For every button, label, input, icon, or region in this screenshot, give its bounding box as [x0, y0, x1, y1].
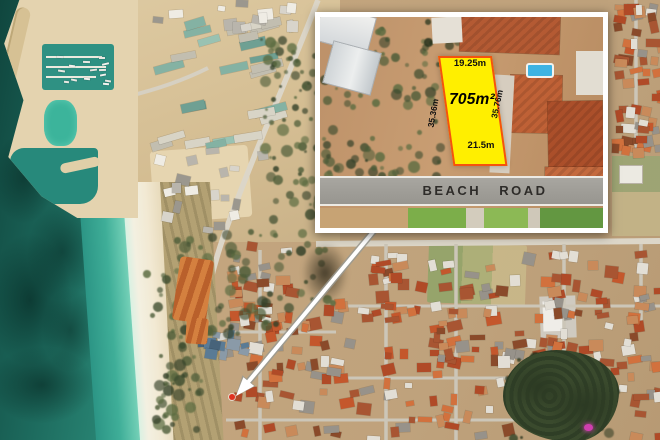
vegetation — [398, 146, 404, 152]
vegetation — [405, 63, 409, 67]
road-edge-line — [320, 204, 603, 206]
vegetation — [344, 90, 352, 98]
swimming-pool — [526, 63, 554, 78]
lawn-verge — [408, 208, 466, 228]
vegetation — [346, 140, 353, 147]
warehouse-roof — [323, 42, 380, 95]
house-roof — [431, 17, 462, 44]
vegetation — [371, 98, 380, 107]
vegetation — [379, 37, 391, 49]
vegetation — [332, 164, 340, 172]
road-name-label: BEACH ROAD — [385, 183, 585, 198]
dimension-bottom: 21.5m — [451, 140, 511, 151]
vegetation — [335, 87, 339, 91]
vegetation — [374, 152, 385, 163]
vegetation — [380, 165, 385, 170]
inset-map: 19.25m 705m² 35.36m 35.76m 21.5m BEACH R… — [315, 12, 608, 233]
vegetation — [328, 125, 339, 136]
road-edge-line — [320, 176, 603, 178]
vegetation — [377, 26, 386, 35]
vegetation — [349, 104, 356, 111]
vegetation — [390, 52, 400, 62]
aerial-photo: 19.25m 705m² 35.36m 35.76m 21.5m BEACH R… — [0, 0, 660, 440]
vegetation — [436, 143, 446, 153]
vegetation — [412, 86, 416, 90]
vegetation — [411, 91, 421, 101]
vegetation — [422, 73, 428, 79]
inset-aerial: 19.25m 705m² 35.36m 35.76m 21.5m BEACH R… — [320, 17, 603, 228]
vegetation — [357, 93, 363, 99]
vegetation — [421, 61, 428, 68]
house-roof — [547, 101, 603, 170]
vegetation — [365, 159, 369, 163]
house-roof — [576, 51, 603, 95]
vegetation — [322, 95, 332, 105]
vegetation — [437, 159, 441, 163]
vegetation — [406, 143, 413, 150]
vegetation — [408, 161, 420, 173]
vegetation — [416, 129, 422, 135]
dimension-top: 19.25m — [442, 58, 498, 69]
lawn-verge — [484, 208, 528, 228]
vegetation — [392, 169, 399, 176]
vegetation — [423, 38, 432, 47]
vegetation — [370, 136, 375, 141]
vegetation — [345, 158, 356, 169]
verge — [320, 208, 408, 228]
lawn-verge — [540, 208, 603, 228]
house-roof — [459, 17, 560, 55]
vegetation — [414, 150, 422, 158]
driveway — [466, 208, 484, 228]
driveway — [528, 208, 540, 228]
